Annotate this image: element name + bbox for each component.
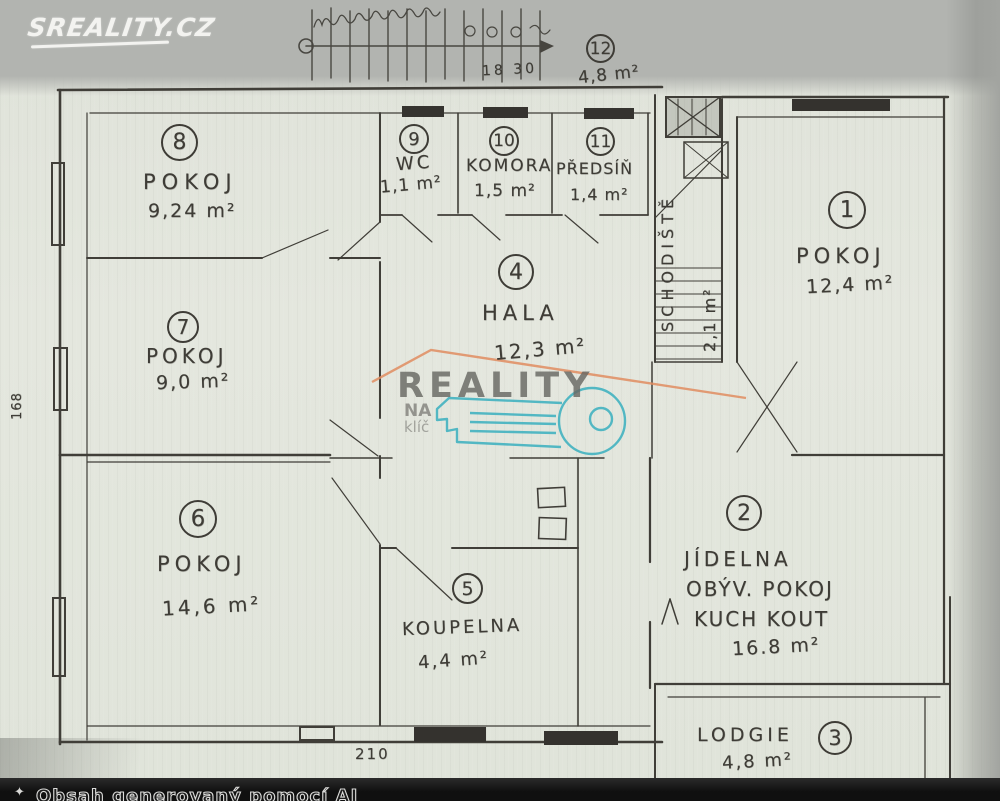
room-area-7: 9,0 m² [156,370,231,395]
room-number-badge-11: 11 [586,127,615,156]
room-name-10: KOMORA [466,156,552,176]
room-number-badge-1: 1 [828,191,866,229]
room-name-4: HALA [482,301,559,325]
fixtures [538,487,567,539]
room-name-2: JÍDELNA [684,547,792,571]
sparkle-icon [14,785,25,800]
room-area-1: 12,4 m² [805,272,895,299]
ai-content-band: Obsah generovaný pomocí AI [0,778,1000,801]
room-name-3: LODGIE [697,724,793,746]
room-name-7: POKOJ [146,344,227,368]
room-name-6: POKOJ [157,552,247,576]
room-number-badge-7: 7 [167,311,199,343]
room-number-badge-4: 4 [498,254,534,290]
room-number-badge-3: 3 [818,721,852,755]
room-number-badge-10: 10 [489,126,519,156]
room-area-8: 9,24 m² [148,200,236,222]
reality-klic-label: klíč [404,418,429,436]
room-area-11: 1,4 m² [570,185,629,204]
dimension-stair: 18 30 [482,61,538,80]
room-name-2c: KUCH KOUT [694,607,829,631]
room-name-8: POKOJ [143,170,238,194]
handwritten-scribble [314,8,440,27]
room-number-badge-6: 6 [179,500,217,538]
room-name-11: PŘEDSÍŇ [556,159,633,178]
room-name-1: POKOJ [796,244,886,268]
staircase-label: SCHODIŠTĚ [658,142,677,332]
reality-na-klic-watermark: REALITY [397,366,595,406]
room-name-2b: OBÝV. POKOJ [686,577,834,601]
room-number-badge-12: 12 [586,34,615,63]
room-number-badge-5: 5 [452,573,483,604]
room-number-badge-2: 2 [726,495,762,531]
room-area-3: 4,8 m² [721,749,793,774]
dimension-bottom: 210 [355,745,390,763]
room-area-10: 1,5 m² [474,181,536,201]
floorplan-photo: 1 2 3 4 5 6 7 8 9 10 11 12 POKOJ 12,4 m²… [0,0,1000,801]
dimension-left: 168 [10,360,25,420]
ai-generated-notice: Obsah generovaný pomocí AI [36,786,358,801]
room-number-badge-8: 8 [161,124,198,161]
room-name-5: KOUPELNA [402,615,523,640]
room-name-9: WC [395,152,433,175]
room-number-badge-9: 9 [399,124,429,154]
staircase-area: 2,1 m² [700,242,719,352]
sreality-watermark: SREALITY.CZ [26,13,217,42]
room-area-2: 16.8 m² [731,634,821,661]
